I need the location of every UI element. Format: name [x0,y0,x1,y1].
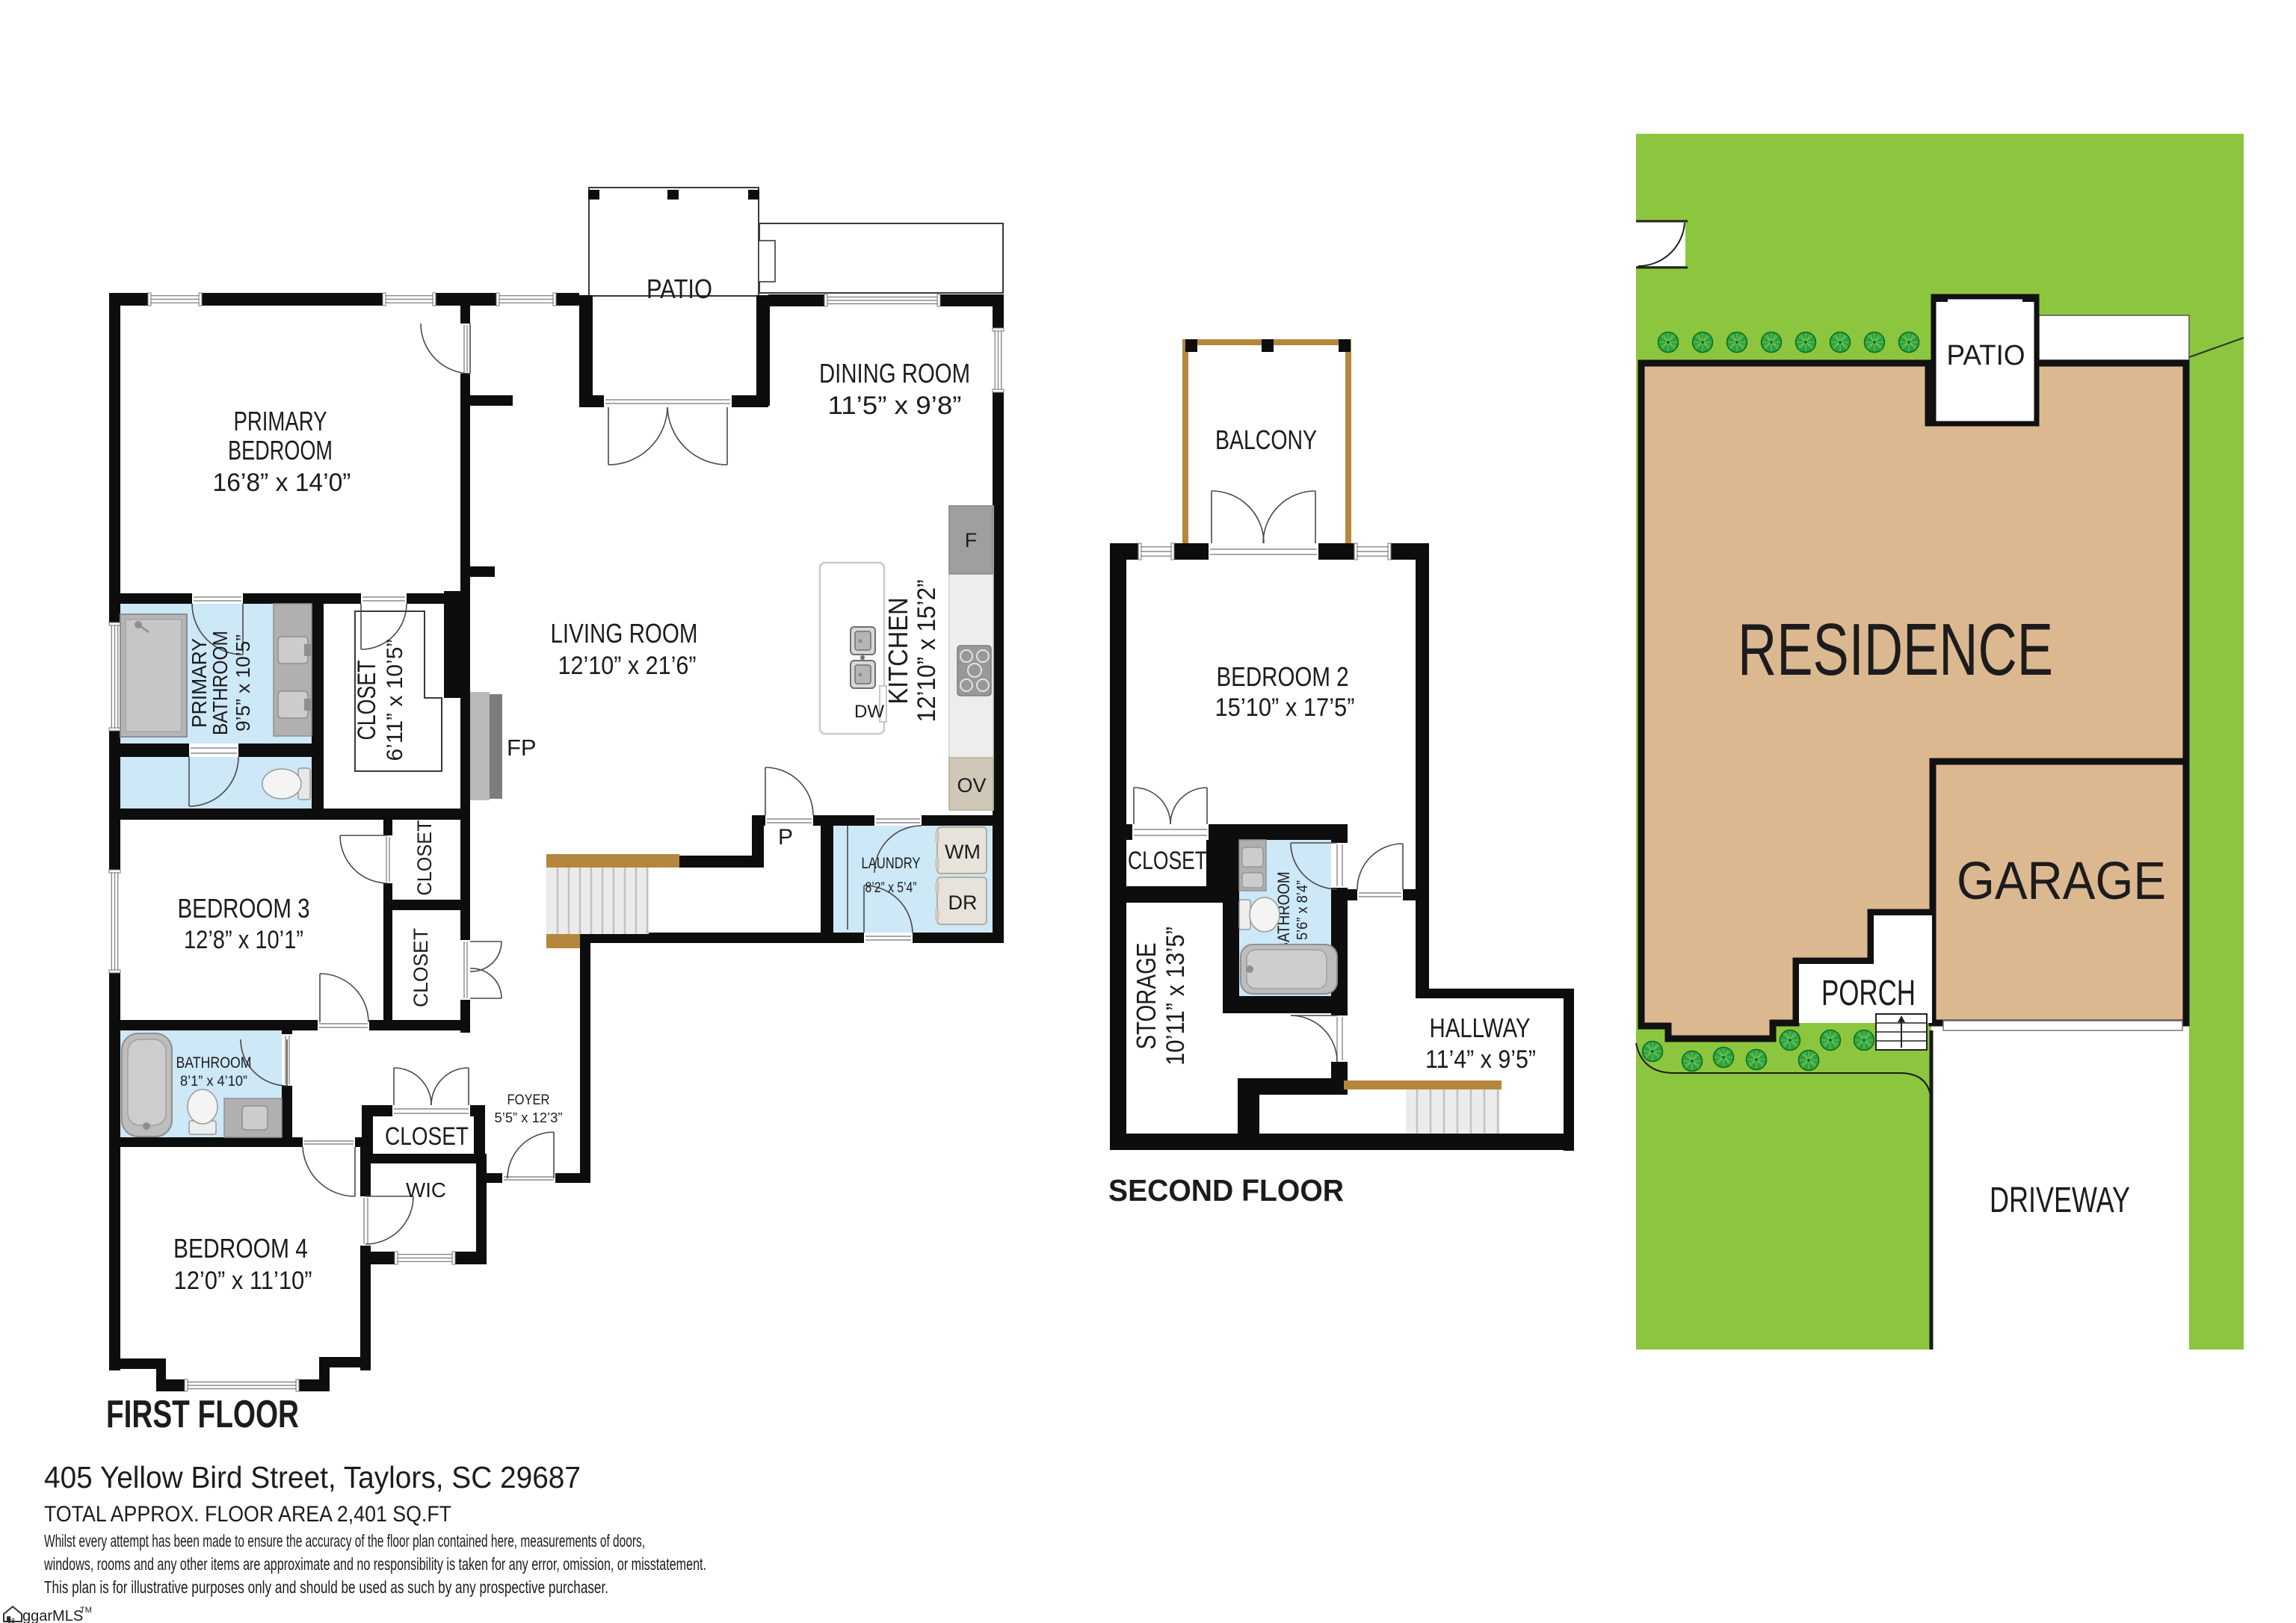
svg-text:BATHROOM: BATHROOM [209,631,232,735]
svg-text:8’1” x 4’10”: 8’1” x 4’10” [180,1074,247,1089]
svg-text:16’8” x 14’0”: 16’8” x 14’0” [213,469,351,497]
svg-text:6’11” x 10’5”: 6’11” x 10’5” [383,640,407,761]
svg-text:CLOSET: CLOSET [385,1122,469,1151]
svg-text:BEDROOM 2: BEDROOM 2 [1217,661,1349,692]
svg-text:F: F [965,529,978,551]
svg-text:FP: FP [507,735,537,761]
svg-text:SECOND FLOOR: SECOND FLOOR [1108,1173,1344,1208]
svg-text:10’11” x 13’5”: 10’11” x 13’5” [1161,927,1190,1066]
svg-text:WIC: WIC [406,1178,446,1202]
svg-text:11’5” x 9’8”: 11’5” x 9’8” [828,392,962,420]
svg-text:LAUNDRY: LAUNDRY [862,855,921,872]
svg-text:STORAGE: STORAGE [1131,943,1161,1050]
svg-text:This plan is for illustrative: This plan is for illustrative purposes o… [44,1577,608,1597]
svg-text:TM: TM [80,1606,92,1615]
svg-text:12’10” x 15’2”: 12’10” x 15’2” [913,580,941,723]
svg-text:12’0” x 11’10”: 12’0” x 11’10” [174,1267,312,1295]
svg-text:P: P [778,825,793,850]
svg-text:15’10” x 17’5”: 15’10” x 17’5” [1215,693,1355,722]
svg-text:CLOSET: CLOSET [1128,847,1207,875]
svg-text:TOTAL APPROX. FLOOR AREA 2,401: TOTAL APPROX. FLOOR AREA 2,401 SQ.FT [44,1502,451,1527]
svg-text:PATIO: PATIO [646,273,712,304]
svg-text:12’10” x 21’6”: 12’10” x 21’6” [558,652,697,680]
svg-text:LIVING ROOM: LIVING ROOM [551,618,698,649]
svg-text:GARAGE: GARAGE [1957,852,2166,911]
svg-text:KITCHEN: KITCHEN [883,598,913,705]
svg-text:5’5” x 12’3”: 5’5” x 12’3” [495,1110,563,1125]
svg-text:Whilst every attempt has been: Whilst every attempt has been made to en… [44,1531,645,1551]
svg-text:CLOSET: CLOSET [410,928,432,1007]
svg-text:BEDROOM 4: BEDROOM 4 [173,1233,308,1264]
svg-text:88: 88 [7,1617,15,1623]
svg-text:WM: WM [945,841,981,863]
svg-text:FIRST FLOOR: FIRST FLOOR [106,1393,299,1436]
svg-text:PRIMARY: PRIMARY [234,406,327,436]
svg-text:PATIO: PATIO [1947,340,2025,371]
svg-text:HALLWAY: HALLWAY [1430,1013,1531,1043]
svg-text:BEDROOM: BEDROOM [228,435,333,466]
svg-text:8’2” x 5’4”: 8’2” x 5’4” [865,880,917,896]
svg-text:ggarMLS: ggarMLS [22,1608,83,1623]
svg-text:PORCH: PORCH [1821,974,1916,1013]
svg-text:CLOSET: CLOSET [353,661,381,741]
svg-text:9’5” x 10’5”: 9’5” x 10’5” [232,634,254,732]
svg-text:BALCONY: BALCONY [1215,424,1317,455]
svg-text:DRIVEWAY: DRIVEWAY [1990,1181,2130,1220]
svg-text:5’6” x 8’4”: 5’6” x 8’4” [1294,880,1311,940]
svg-text:DR: DR [948,891,978,914]
svg-text:FOYER: FOYER [507,1092,550,1108]
svg-text:BEDROOM 3: BEDROOM 3 [178,893,310,924]
svg-text:windows, rooms and any other i: windows, rooms and any other items are a… [43,1554,706,1574]
svg-text:11’4” x 9’5”: 11’4” x 9’5” [1425,1045,1536,1074]
svg-text:PRIMARY: PRIMARY [188,638,211,728]
svg-text:405 Yellow Bird Street, Taylor: 405 Yellow Bird Street, Taylors, SC 2968… [44,1460,581,1494]
svg-text:12’8” x 10’1”: 12’8” x 10’1” [184,926,303,954]
svg-text:BATHROOM: BATHROOM [176,1054,252,1072]
svg-text:OV: OV [957,774,986,797]
svg-text:RESIDENCE: RESIDENCE [1738,608,2053,690]
svg-text:DINING ROOM: DINING ROOM [819,358,970,389]
svg-text:CLOSET: CLOSET [413,820,436,896]
svg-text:DW: DW [854,702,884,722]
